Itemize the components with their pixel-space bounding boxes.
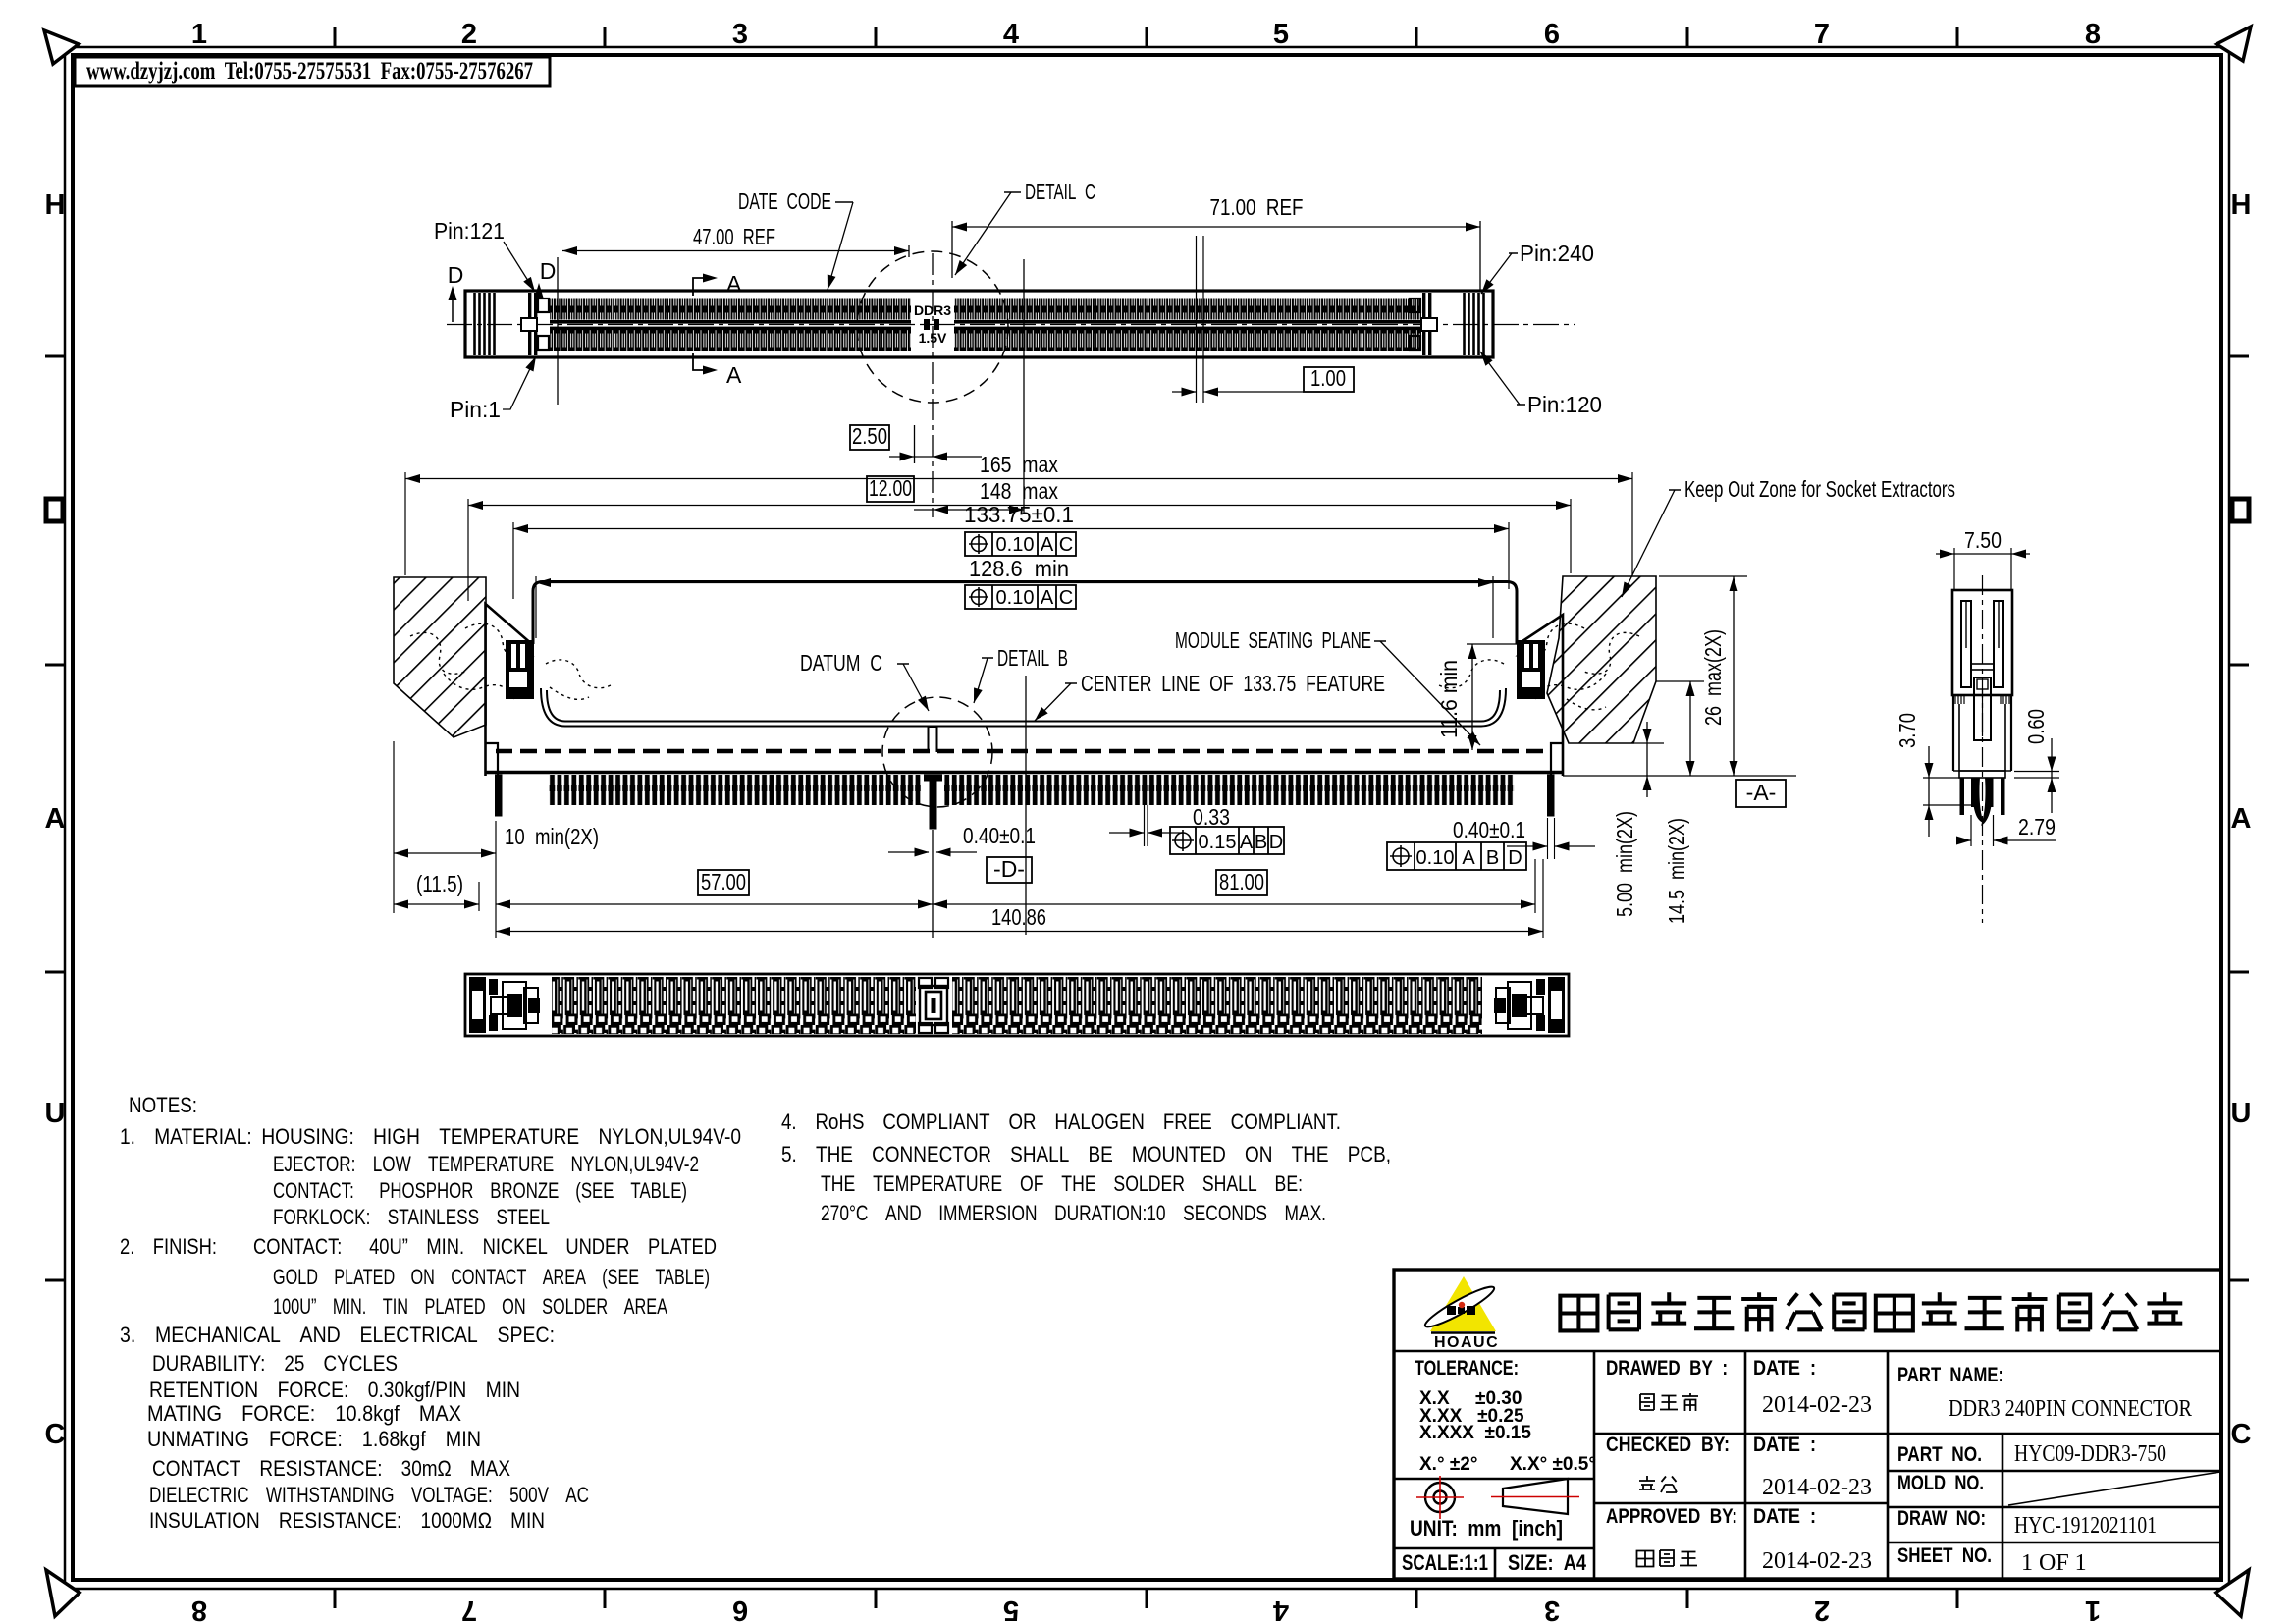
svg-text:Pin:1: Pin:1 bbox=[450, 397, 501, 422]
svg-text:SCALE:1:1: SCALE:1:1 bbox=[1402, 1550, 1488, 1575]
svg-text:0.10: 0.10 bbox=[1416, 847, 1455, 869]
svg-text:5: 5 bbox=[1003, 1595, 1019, 1624]
svg-text:CHECKED BY:: CHECKED BY: bbox=[1606, 1434, 1730, 1456]
svg-text:C: C bbox=[1059, 534, 1073, 556]
svg-text:7: 7 bbox=[1814, 19, 1830, 50]
svg-text:CONTACT RESISTANCE: 30mΩ MA: CONTACT RESISTANCE: 30mΩ MAX bbox=[152, 1456, 510, 1481]
svg-text:26 max(2X): 26 max(2X) bbox=[1700, 629, 1726, 726]
svg-text:NOTES:: NOTES: bbox=[129, 1093, 197, 1117]
svg-text:Pin:120: Pin:120 bbox=[1527, 392, 1602, 417]
svg-text:MATING FORCE: 10.8kgf MAX: MATING FORCE: 10.8kgf MAX bbox=[147, 1401, 461, 1426]
svg-text:PART NAME:: PART NAME: bbox=[1897, 1364, 2003, 1386]
svg-text:0.10: 0.10 bbox=[996, 587, 1035, 609]
svg-text:C: C bbox=[45, 1419, 66, 1450]
svg-text:CENTER LINE OF 133.75 FEAT: CENTER LINE OF 133.75 FEATURE bbox=[1081, 671, 1385, 696]
svg-text:PART NO.: PART NO. bbox=[1897, 1443, 1982, 1466]
svg-text:6: 6 bbox=[732, 1595, 748, 1624]
svg-text:(11.5): (11.5) bbox=[416, 871, 463, 896]
svg-text:A: A bbox=[2231, 803, 2252, 835]
svg-text:X.X° ±0.5°: X.X° ±0.5° bbox=[1510, 1454, 1596, 1475]
svg-text:0.40±0.1: 0.40±0.1 bbox=[963, 823, 1036, 848]
svg-text:Pin:121: Pin:121 bbox=[434, 218, 505, 244]
svg-text:A: A bbox=[1041, 534, 1054, 556]
svg-text:UNMATING FORCE: 1.68kgf MIN: UNMATING FORCE: 1.68kgf MIN bbox=[147, 1427, 481, 1451]
svg-text:HYC-1912021101: HYC-1912021101 bbox=[2014, 1513, 2157, 1539]
svg-text:57.00: 57.00 bbox=[701, 869, 746, 894]
svg-text:11.6 min: 11.6 min bbox=[1436, 660, 1462, 738]
svg-text:1. MATERIAL: HOUSING: HIGH: 1. MATERIAL: HOUSING: HIGH TEMPERATURE N… bbox=[120, 1124, 741, 1149]
svg-text:71.00 REF: 71.00 REF bbox=[1210, 194, 1304, 220]
svg-text:3.70: 3.70 bbox=[1895, 713, 1920, 748]
svg-text:7: 7 bbox=[461, 1595, 477, 1624]
svg-text:MOLD NO.: MOLD NO. bbox=[1897, 1472, 1984, 1494]
svg-text:D: D bbox=[1269, 832, 1283, 853]
svg-text:14.5 min(2X): 14.5 min(2X) bbox=[1664, 818, 1689, 924]
svg-text:DETAIL B: DETAIL B bbox=[997, 645, 1068, 671]
svg-text:CONTACT: PHOSPHOR BRONZE (: CONTACT: PHOSPHOR BRONZE (SEE TABLE) bbox=[273, 1178, 687, 1203]
svg-text:DATE CODE: DATE CODE bbox=[738, 189, 831, 214]
svg-text:6: 6 bbox=[1544, 19, 1560, 50]
svg-text:165 max: 165 max bbox=[980, 452, 1058, 477]
svg-text:A: A bbox=[726, 362, 742, 388]
svg-text:X.XXX ±0.15: X.XXX ±0.15 bbox=[1419, 1423, 1531, 1443]
svg-text:-A-: -A- bbox=[1746, 780, 1777, 805]
svg-text:SIZE: A4: SIZE: A4 bbox=[1508, 1550, 1587, 1575]
svg-text:H: H bbox=[2231, 189, 2252, 221]
svg-text:2. FINISH: CONTACT: 40U”: 2. FINISH: CONTACT: 40U” MIN. NICKEL UND… bbox=[120, 1234, 717, 1259]
svg-text:1: 1 bbox=[191, 19, 207, 50]
svg-text:DRAW NO:: DRAW NO: bbox=[1897, 1507, 1986, 1530]
svg-text:5: 5 bbox=[1273, 19, 1289, 50]
svg-text:B: B bbox=[1255, 832, 1267, 853]
svg-text:2014-02-23: 2014-02-23 bbox=[1762, 1475, 1872, 1500]
svg-text:DATE :: DATE : bbox=[1753, 1505, 1816, 1528]
svg-text:C: C bbox=[1059, 587, 1073, 609]
svg-text:GOLD PLATED ON CONTACT ARE: GOLD PLATED ON CONTACT AREA (SEE TABLE) bbox=[273, 1265, 710, 1289]
svg-text:INSULATION RESISTANCE: 1000M: INSULATION RESISTANCE: 1000MΩ MIN bbox=[149, 1508, 545, 1533]
svg-text:-D-: -D- bbox=[993, 856, 1025, 882]
svg-text:2: 2 bbox=[461, 19, 477, 50]
svg-text:1: 1 bbox=[2085, 1595, 2101, 1624]
svg-text:D: D bbox=[1508, 847, 1522, 869]
svg-text:B: B bbox=[1486, 847, 1499, 869]
svg-text:5.00 min(2X): 5.00 min(2X) bbox=[1612, 811, 1637, 917]
svg-text:47.00 REF: 47.00 REF bbox=[693, 224, 775, 249]
svg-text:THE TEMPERATURE OF THE SOL: THE TEMPERATURE OF THE SOLDER SHALL BE: bbox=[821, 1171, 1303, 1196]
svg-text:RETENTION FORCE: 0.30kgf/PIN: RETENTION FORCE: 0.30kgf/PIN MIN bbox=[149, 1378, 520, 1402]
svg-text:D: D bbox=[448, 262, 464, 288]
svg-text:7.50: 7.50 bbox=[1964, 527, 2002, 553]
svg-text:HOAUC: HOAUC bbox=[1434, 1334, 1499, 1351]
svg-text:2.79: 2.79 bbox=[2018, 814, 2056, 839]
svg-text:2.50: 2.50 bbox=[852, 423, 887, 449]
svg-text:A: A bbox=[1240, 832, 1254, 853]
svg-text:5. THE CONNECTOR SHALL BE: 5. THE CONNECTOR SHALL BE MOUNTED ON THE… bbox=[781, 1142, 1391, 1166]
svg-text:A: A bbox=[45, 803, 66, 835]
svg-text:X.° ±2°: X.° ±2° bbox=[1419, 1454, 1477, 1475]
svg-text:8: 8 bbox=[191, 1595, 207, 1624]
svg-text:0.60: 0.60 bbox=[2023, 709, 2049, 744]
svg-text:0.10: 0.10 bbox=[996, 534, 1035, 556]
svg-text:Pin:240: Pin:240 bbox=[1520, 241, 1594, 266]
svg-text:100U” MIN. TIN PLATED ON: 100U” MIN. TIN PLATED ON SOLDER AREA bbox=[273, 1294, 667, 1319]
svg-text:3: 3 bbox=[1544, 1595, 1560, 1624]
svg-text:DURABILITY: 25 CYCLES: DURABILITY: 25 CYCLES bbox=[152, 1351, 398, 1376]
svg-text:133.75±0.1: 133.75±0.1 bbox=[964, 502, 1074, 527]
svg-text:A: A bbox=[1462, 847, 1475, 869]
svg-text:DDR3 240PIN CONNECTOR: DDR3 240PIN CONNECTOR bbox=[1949, 1396, 2192, 1422]
svg-text:270°C AND IMMERSION DURATIO: 270°C AND IMMERSION DURATION:10 SECONDS … bbox=[821, 1201, 1326, 1225]
svg-text:DRAWED BY :: DRAWED BY : bbox=[1606, 1357, 1728, 1380]
svg-text:UNIT: mm [inch]: UNIT: mm [inch] bbox=[1410, 1516, 1563, 1541]
svg-text:U: U bbox=[2231, 1098, 2252, 1129]
svg-text:DETAIL C: DETAIL C bbox=[1025, 179, 1095, 204]
svg-text:140.86: 140.86 bbox=[991, 904, 1046, 930]
svg-text:FORKLOCK: STAINLESS STEEL: FORKLOCK: STAINLESS STEEL bbox=[273, 1205, 550, 1229]
svg-text:0.40±0.1: 0.40±0.1 bbox=[1453, 817, 1525, 842]
svg-text:DATUM C: DATUM C bbox=[800, 650, 882, 676]
svg-text:HYC09-DDR3-750: HYC09-DDR3-750 bbox=[2014, 1441, 2166, 1467]
svg-text:1.00: 1.00 bbox=[1310, 365, 1346, 391]
svg-text:2014-02-23: 2014-02-23 bbox=[1762, 1392, 1872, 1418]
svg-text:C: C bbox=[2231, 1419, 2252, 1450]
svg-text:www.dzyjzj.com Tel:0755-27575: www.dzyjzj.com Tel:0755-27575531 Fax:075… bbox=[86, 58, 533, 84]
svg-text:1 OF 1: 1 OF 1 bbox=[2021, 1550, 2087, 1576]
svg-text:EJECTOR: LOW TEMPERATURE NY: EJECTOR: LOW TEMPERATURE NYLON,UL94V-2 bbox=[273, 1152, 699, 1176]
svg-text:MODULE SEATING PLANE: MODULE SEATING PLANE bbox=[1175, 627, 1371, 653]
svg-text:SHEET NO.: SHEET NO. bbox=[1897, 1544, 1992, 1567]
svg-text:2: 2 bbox=[1814, 1595, 1830, 1624]
svg-text:TOLERANCE:: TOLERANCE: bbox=[1415, 1357, 1519, 1380]
svg-text:128.6 min: 128.6 min bbox=[969, 556, 1069, 581]
svg-text:4. RoHS COMPLIANT OR HALOG: 4. RoHS COMPLIANT OR HALOGEN FREE COMPLI… bbox=[781, 1110, 1341, 1134]
svg-text:DATE :: DATE : bbox=[1753, 1357, 1816, 1380]
svg-text:H: H bbox=[45, 189, 66, 221]
svg-text:10 min(2X): 10 min(2X) bbox=[505, 824, 599, 849]
svg-text:81.00: 81.00 bbox=[1219, 869, 1264, 894]
svg-text:0.33: 0.33 bbox=[1193, 804, 1230, 830]
svg-text:8: 8 bbox=[2085, 19, 2101, 50]
svg-text:2014-02-23: 2014-02-23 bbox=[1762, 1548, 1872, 1574]
svg-text:4: 4 bbox=[1003, 19, 1019, 50]
svg-text:D: D bbox=[540, 258, 557, 284]
svg-text:3: 3 bbox=[732, 19, 748, 50]
svg-text:U: U bbox=[45, 1098, 66, 1129]
svg-text:APPROVED BY:: APPROVED BY: bbox=[1606, 1505, 1737, 1528]
svg-text:A: A bbox=[1041, 587, 1054, 609]
svg-text:DATE :: DATE : bbox=[1753, 1434, 1816, 1456]
svg-text:DIELECTRIC WITHSTANDING VOLT: DIELECTRIC WITHSTANDING VOLTAGE: 500V AC bbox=[149, 1483, 589, 1507]
svg-text:3. MECHANICAL AND ELECTRICA: 3. MECHANICAL AND ELECTRICAL SPEC: bbox=[120, 1323, 555, 1347]
svg-text:4: 4 bbox=[1273, 1595, 1289, 1624]
svg-text:0.15: 0.15 bbox=[1199, 832, 1237, 853]
svg-text:Keep Out Zone for Socket Extra: Keep Out Zone for Socket Extractors bbox=[1684, 476, 1955, 502]
svg-text:148 max: 148 max bbox=[980, 478, 1058, 504]
svg-text:A: A bbox=[726, 271, 742, 297]
